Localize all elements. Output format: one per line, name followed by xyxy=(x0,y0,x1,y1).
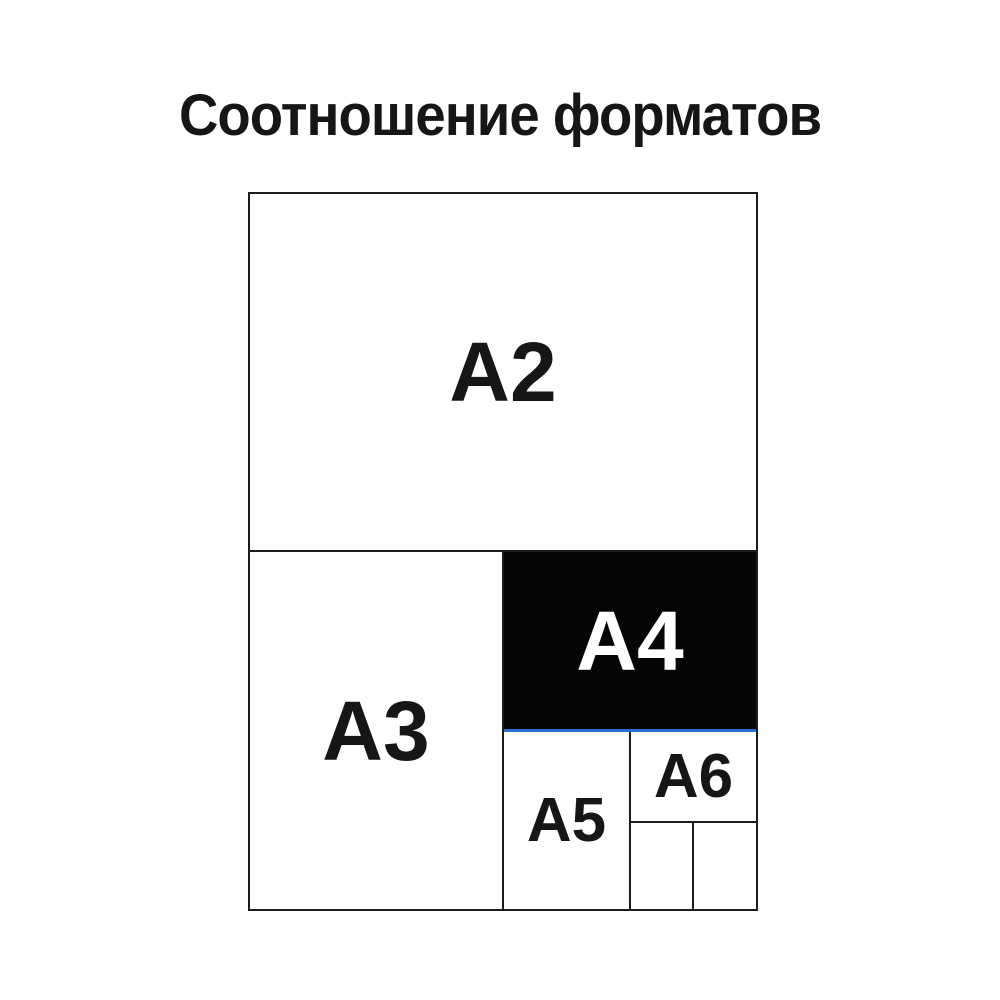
bottom-right-quarter: А4 А5 А6 xyxy=(504,552,756,909)
format-a4-label: А4 xyxy=(576,599,683,683)
a6-column: А6 xyxy=(631,732,756,909)
page-title: Соотношение форматов xyxy=(30,82,970,149)
bottom-half: А3 А4 А5 А6 xyxy=(250,552,756,909)
format-a6-region: А6 xyxy=(631,732,756,823)
format-a2-region: А2 xyxy=(250,194,756,552)
format-a3-label: А3 xyxy=(322,689,429,773)
format-a5-label: А5 xyxy=(527,790,606,852)
format-a3-region: А3 xyxy=(250,552,504,909)
format-diagram: А2 А3 А4 А5 А6 xyxy=(248,192,758,911)
format-a4-region: А4 xyxy=(504,552,756,732)
a7-cell-right xyxy=(694,823,756,909)
a7-row xyxy=(631,823,756,909)
a5-a6-row: А5 А6 xyxy=(504,732,756,909)
format-a6-label: А6 xyxy=(654,746,733,808)
format-a2-label: А2 xyxy=(449,330,556,414)
format-a5-region: А5 xyxy=(504,732,631,909)
a7-cell-left xyxy=(631,823,694,909)
